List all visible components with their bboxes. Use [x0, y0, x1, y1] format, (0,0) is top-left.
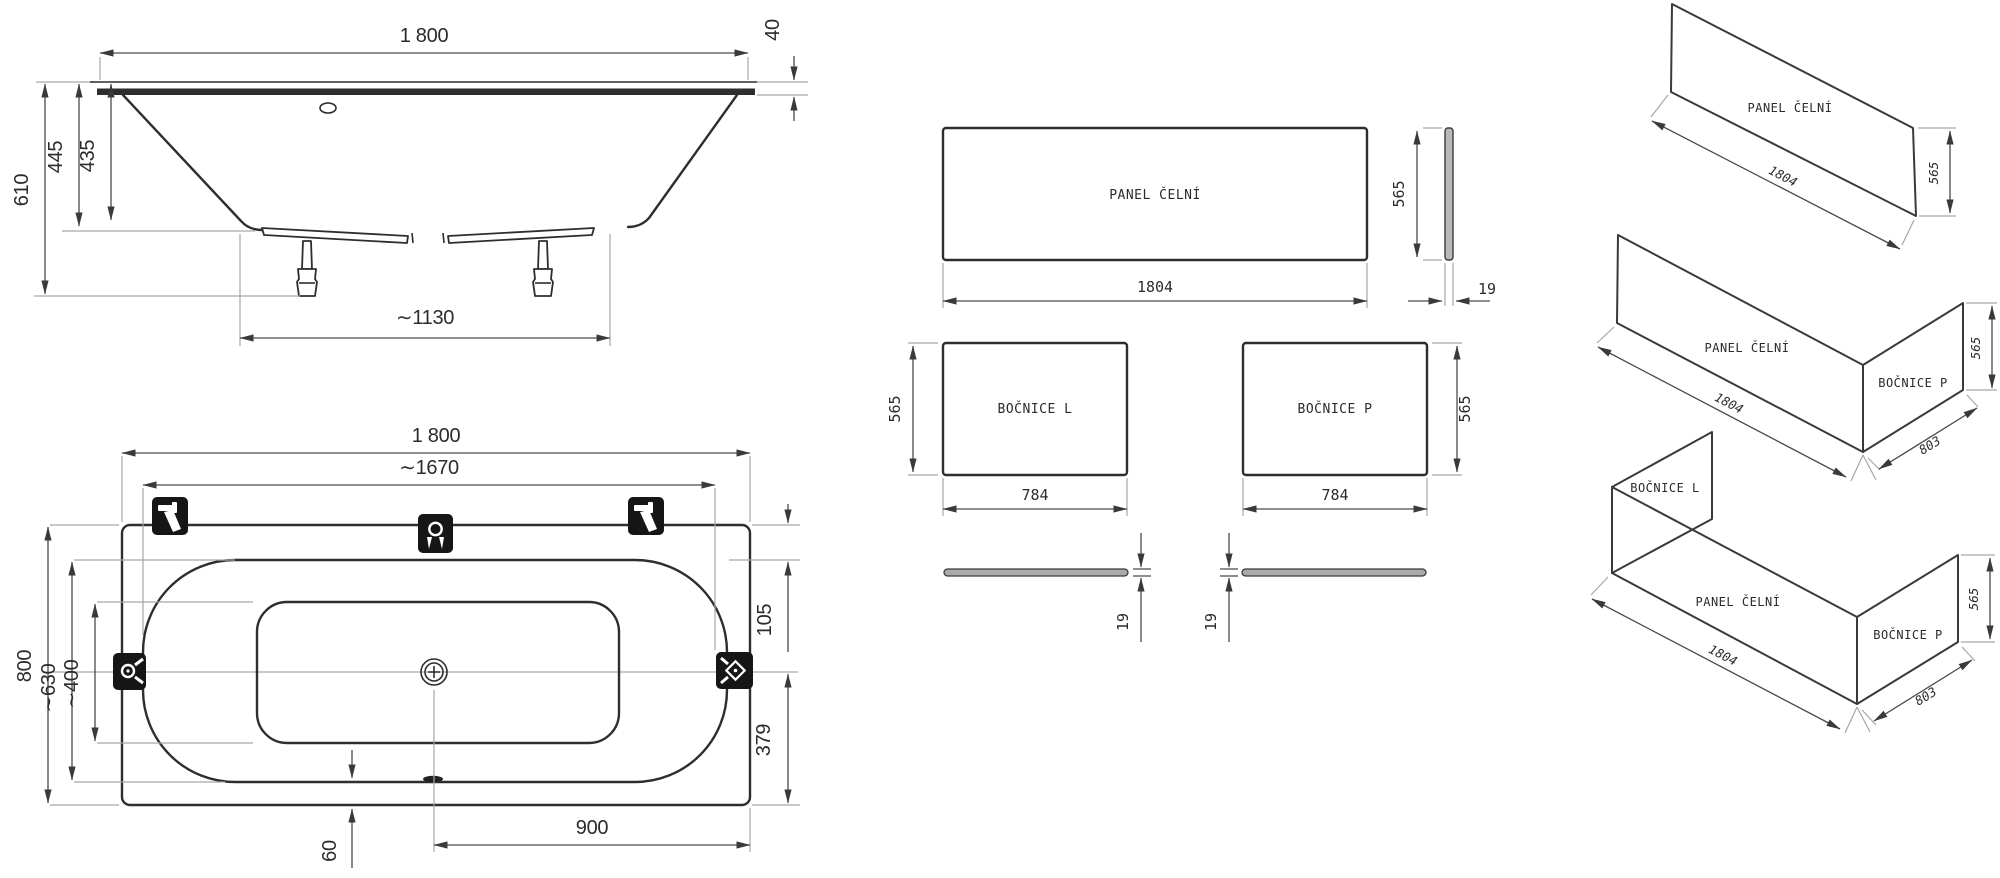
- front-panel-height: 565: [1390, 180, 1408, 207]
- extension-line: [1862, 647, 1975, 725]
- iso-full-depth: 803: [1912, 684, 1939, 709]
- dim-total-height: 610: [11, 174, 33, 207]
- strip-right-thickness-dim: 19: [1202, 533, 1238, 642]
- side-panel-left-thickness: 19: [1114, 613, 1132, 631]
- front-panel-edge-view: [1445, 128, 1453, 260]
- iso-front-panel-label: PANEL ČELNÍ: [1748, 100, 1833, 115]
- iso-full-height: 565: [1966, 588, 1981, 611]
- dim-inner-length: ∼1670: [399, 457, 459, 479]
- extension-line: [1423, 128, 1442, 260]
- extension-line: [240, 234, 610, 346]
- dimension-line: [1652, 121, 1900, 249]
- support-plate-left: [262, 228, 408, 243]
- iso-full-assembly: BOČNICE L PANEL ČELNÍ BOČNICE P 1804 803…: [1591, 432, 1995, 733]
- dim-top-overall-length: 1 800: [412, 425, 461, 447]
- technical-drawing-page: 1 800 40 610 445 435 ∼1130: [0, 0, 2000, 878]
- bracket-faucet-left: [152, 497, 188, 535]
- drain: [421, 659, 447, 685]
- side-panel-left-label: BOČNICE L: [998, 401, 1073, 417]
- dimension-line: [1592, 599, 1840, 729]
- dim-body-height: 445: [45, 141, 67, 174]
- iso-views: PANEL ČELNÍ 1804 565 PANEL ČELNÍ BOČNICE…: [1591, 4, 1997, 733]
- bracket-faucet-right: [628, 497, 664, 535]
- panel-edge-strips: 19 19: [944, 533, 1426, 642]
- dim-edge-to-rim-top: 105: [754, 604, 776, 637]
- dim-side-overall-length: 1 800: [400, 25, 449, 47]
- tub-rim-inner-edge: [143, 560, 727, 782]
- overflow-mark: [423, 776, 443, 782]
- side-panel-right-length: 784: [1321, 486, 1348, 504]
- side-view-dimensions: 1 800 40 610 445 435 ∼1130: [11, 19, 808, 346]
- tub-outer-edge: [122, 525, 750, 805]
- plate-clips: [412, 233, 444, 243]
- strip-left-thickness-dim: 19: [1114, 533, 1151, 642]
- iso-full-length: 1804: [1706, 641, 1740, 668]
- side-panel-right-edge-view: [1242, 569, 1426, 576]
- side-panel-right-thickness: 19: [1202, 613, 1220, 631]
- dim-inner-width: ∼630: [38, 663, 60, 712]
- front-panel-length: 1804: [1137, 278, 1173, 296]
- top-view-dimensions: 1 800 ∼1670 800 ∼630 ∼400 105 379: [14, 425, 800, 868]
- side-panel-right-label: BOČNICE P: [1298, 401, 1373, 417]
- dim-feet-spacing: ∼1130: [396, 307, 454, 329]
- extension-line: [729, 525, 800, 560]
- side-panel-left-edge-view: [944, 569, 1128, 576]
- extension-line: [100, 57, 748, 80]
- extension-line: [1133, 569, 1151, 576]
- dim-bottom-width: ∼400: [61, 659, 83, 708]
- foot-right: [533, 241, 553, 296]
- dimension-line: [1598, 347, 1846, 477]
- foot-left: [297, 241, 317, 296]
- side-view: 1 800 40 610 445 435 ∼1130: [11, 19, 808, 346]
- bathtub-technical-drawing: 1 800 40 610 445 435 ∼1130: [0, 0, 2000, 878]
- bracket-center: [418, 514, 453, 553]
- side-panel-left-height: 565: [886, 395, 904, 422]
- iso-front-panel-length: 1804: [1766, 162, 1800, 189]
- bracket-left-middle: [113, 653, 146, 690]
- extension-line: [1445, 263, 1453, 306]
- front-panel-flat: PANEL ČELNÍ 1804 565 19: [943, 128, 1496, 308]
- front-panel-label: PANEL ČELNÍ: [1109, 187, 1201, 203]
- side-panel-right-height: 565: [1456, 395, 1474, 422]
- dim-drain-to-end: 900: [576, 817, 609, 839]
- extension-line: [1868, 395, 1978, 470]
- iso-front-panel-height: 565: [1926, 162, 1941, 185]
- iso-front-right: PANEL ČELNÍ BOČNICE P 1804 803 565: [1597, 235, 1997, 481]
- dim-rim-height: 40: [762, 19, 784, 41]
- side-panel-left-length: 784: [1021, 486, 1048, 504]
- iso-side-right-height: 565: [1968, 337, 1983, 360]
- iso-side-right-label: BOČNICE P: [1878, 375, 1948, 390]
- top-view: 1 800 ∼1670 800 ∼630 ∼400 105 379: [14, 425, 800, 868]
- iso-side-right-depth: 803: [1916, 433, 1943, 458]
- side-view-outline: [34, 82, 757, 296]
- side-panel-left-flat: BOČNICE L 565 784: [886, 343, 1127, 516]
- iso-front-panel: PANEL ČELNÍ 1804 565: [1651, 4, 1956, 249]
- rim-bar: [97, 89, 755, 96]
- flat-panels: PANEL ČELNÍ 1804 565 19 BOČNICE L 565 78…: [886, 128, 1496, 642]
- dim-depth: 435: [77, 140, 99, 173]
- dim-overall-width: 800: [14, 650, 36, 683]
- iso-side-right-label: BOČNICE P: [1873, 627, 1943, 642]
- extension-line: [757, 82, 808, 95]
- bracket-right-middle: [716, 652, 753, 689]
- tub-wall-right: [628, 95, 737, 227]
- overflow-hole: [320, 103, 336, 113]
- support-plate-right: [448, 228, 594, 243]
- extension-line: [1220, 569, 1238, 576]
- iso-side-left-label: BOČNICE L: [1630, 480, 1700, 495]
- iso-front-length: 1804: [1712, 389, 1746, 416]
- iso-side-left-face: [1612, 432, 1712, 573]
- dim-center-to-edge-bottom: 379: [753, 724, 775, 757]
- iso-front-label: PANEL ČELNÍ: [1696, 594, 1781, 609]
- top-view-outline: [52, 497, 798, 805]
- front-panel-thickness: 19: [1478, 280, 1496, 298]
- iso-front-label: PANEL ČELNÍ: [1705, 340, 1790, 355]
- side-panel-right-flat: BOČNICE P 565 784: [1243, 343, 1474, 516]
- tub-wall-left: [123, 95, 262, 230]
- dim-rim-to-edge: 60: [319, 840, 341, 862]
